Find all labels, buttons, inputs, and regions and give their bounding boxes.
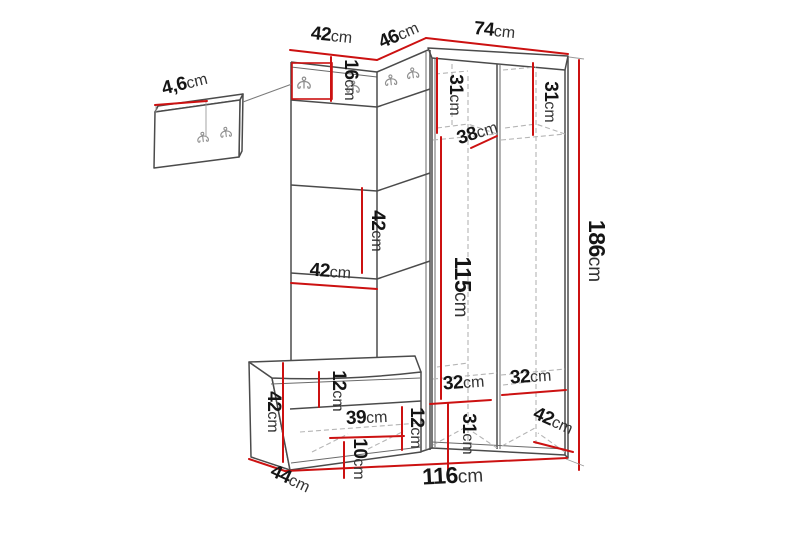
- dim-label-hook-panel-height: 16cm: [340, 59, 361, 100]
- corner-divider-2: [377, 261, 430, 279]
- left-wing-hook-panel-bottom: [291, 100, 377, 107]
- extension-line: [569, 57, 584, 59]
- left-wing-top-slab: [291, 67, 377, 77]
- dim-label-bench-mid-section-height: 12cm: [406, 407, 427, 448]
- dim-label-left-column-interior-width: 32cm: [442, 371, 485, 395]
- hidden-edge: [503, 67, 536, 70]
- right-wing-bottom-edge: [420, 448, 565, 455]
- dim-line-left-section-width: [290, 50, 377, 60]
- corner-divider-1: [377, 173, 430, 191]
- diagram-page: 4,6cm 42cm 46cm 74cm 16cm 31cm 31cm 38cm…: [0, 0, 800, 533]
- dim-line-left-column-interior-width: [430, 400, 491, 404]
- left-wing-divider-1: [291, 185, 377, 191]
- extension-line: [566, 459, 584, 466]
- dim-label-left-column-bottom-height: 31cm: [458, 413, 479, 454]
- coat-hook-icon: [298, 77, 310, 88]
- dim-line-wardrobe-depth: [534, 442, 573, 452]
- dim-line-right-column-interior-width: [502, 390, 566, 395]
- corner-top-edge: [377, 50, 428, 72]
- dim-label-right-left-column-top-height: 31cm: [445, 74, 466, 115]
- dim-label-right-column-interior-width: 32cm: [509, 365, 552, 389]
- coat-hook-icon: [385, 74, 397, 85]
- dim-label-left-section-width: 42cm: [310, 23, 353, 48]
- callout-line: [243, 84, 292, 102]
- dim-label-interior-height: 115cm: [450, 257, 476, 318]
- hidden-edge: [502, 428, 535, 446]
- furniture-dimension-diagram: 4,6cm 42cm 46cm 74cm 16cm 31cm 31cm 38cm…: [0, 0, 800, 533]
- dim-label-right-section-width: 74cm: [473, 18, 516, 43]
- corner-hook-panel-bottom: [377, 89, 430, 107]
- dim-label-corner-section-width: 46cm: [376, 17, 422, 53]
- coat-hook-icon: [406, 67, 419, 78]
- dim-label-bench-shelf-width: 39cm: [345, 406, 388, 429]
- dim-label-bench-bottom-section-height: 10cm: [349, 438, 370, 479]
- dim-label-right-right-column-top-height: 31cm: [540, 81, 561, 122]
- dim-label-left-shelf-section-width: 42cm: [309, 260, 352, 284]
- dim-label-wardrobe-depth: 42cm: [530, 403, 576, 439]
- hook-highlight-box: [292, 63, 332, 99]
- wall-panel-front-face: [154, 100, 240, 168]
- dim-label-total-width: 116cm: [421, 460, 483, 489]
- dim-label-wall-panel-thickness: 4,6cm: [160, 68, 210, 100]
- hidden-edge: [505, 124, 536, 128]
- dim-label-bench-top-section-height: 12cm: [328, 370, 349, 411]
- dim-label-left-shelf-section-height: 42cm: [367, 210, 388, 251]
- dim-label-total-height: 186cm: [584, 220, 610, 282]
- dim-line-left-shelf-section-width: [291, 283, 377, 289]
- dimension-labels: 4,6cm 42cm 46cm 74cm 16cm 31cm 31cm 38cm…: [160, 17, 610, 497]
- hidden-edge: [536, 124, 565, 134]
- dim-label-bench-height: 42cm: [263, 391, 284, 432]
